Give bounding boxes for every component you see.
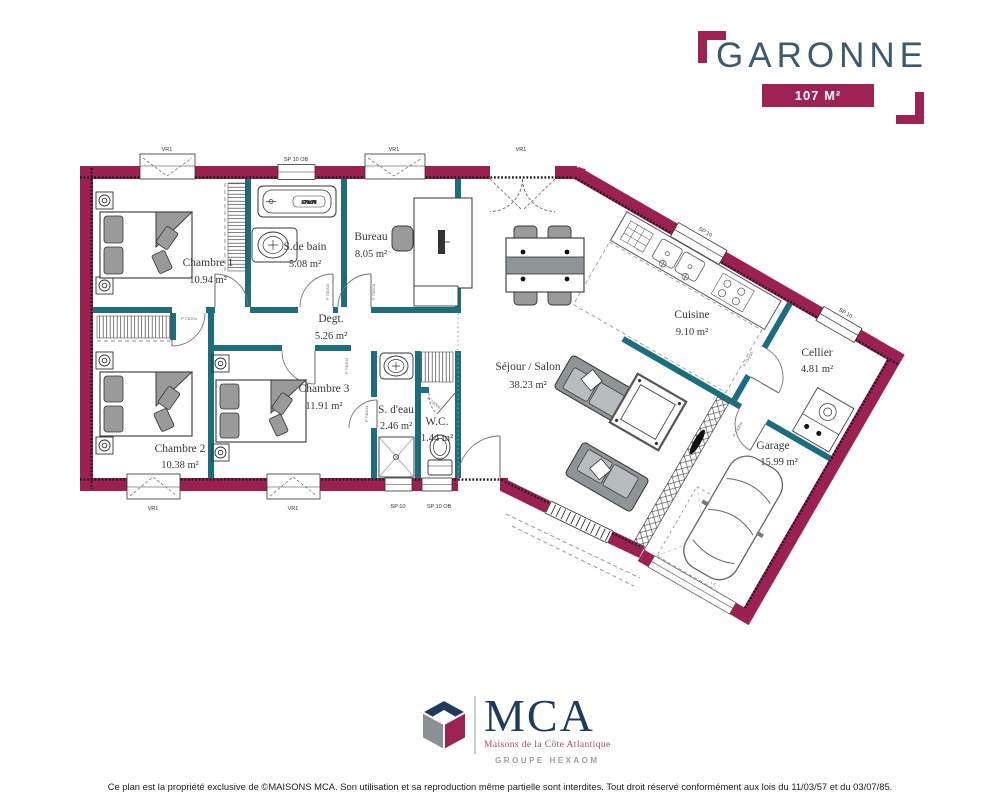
room-label-chambre-2: Chambre 2 10.38 m² <box>155 443 206 471</box>
room-label-degagement: Degt. 5.26 m² <box>315 313 347 342</box>
window-label: SP 10 <box>391 504 406 510</box>
svg-text:38.23 m²: 38.23 m² <box>509 380 547 391</box>
svg-text:Bureau: Bureau <box>354 231 387 243</box>
window-vr-top-1: VR1 <box>140 147 195 179</box>
sofa-2 <box>565 442 650 513</box>
bay-window <box>545 501 613 543</box>
shower <box>379 437 414 477</box>
window-sp-bottom: SP 10 <box>385 478 412 510</box>
svg-text:10.38 m²: 10.38 m² <box>161 460 199 471</box>
window-vr-top-2: VR1 <box>365 147 425 179</box>
svg-text:Séjour / Salon: Séjour / Salon <box>495 361 560 373</box>
mca-cube-icon <box>420 698 468 758</box>
svg-text:S.de bain: S.de bain <box>284 241 327 253</box>
window-vr-bottom-1: VR1 <box>127 474 180 512</box>
svg-text:10.94 m²: 10.94 m² <box>189 275 227 286</box>
svg-text:P 73/204: P 73/204 <box>325 283 330 300</box>
svg-text:8.05 m²: 8.05 m² <box>355 249 387 260</box>
svg-text:Cellier: Cellier <box>801 347 832 359</box>
window-label: SP 10 OB <box>284 157 309 163</box>
svg-text:Cuisine: Cuisine <box>674 309 709 321</box>
entry-door: VR1 <box>490 147 555 212</box>
page-title: GARONNE <box>716 36 926 76</box>
svg-text:Chambre 3: Chambre 3 <box>299 383 350 395</box>
svg-text:P 73/204: P 73/204 <box>426 396 442 411</box>
logo-name: MCA <box>484 694 611 738</box>
window-label: VR1 <box>516 147 527 153</box>
svg-text:15.99 m²: 15.99 m² <box>760 457 798 468</box>
svg-text:P 73/204: P 73/204 <box>371 283 376 300</box>
bathtub: 170x75 <box>258 186 336 217</box>
bed-chambre1 <box>100 212 192 278</box>
room-label-bureau: Bureau 8.05 m² <box>354 231 387 260</box>
logo-subtitle: Maisons de la Côte Atlantique <box>484 740 611 750</box>
svg-text:Chambre 1: Chambre 1 <box>183 257 234 269</box>
title-bracket-bottom-right <box>896 92 924 124</box>
window-label: VR1 <box>148 506 159 512</box>
window-label: SP 10 OB <box>427 504 452 510</box>
window-label: VR1 <box>162 147 173 153</box>
svg-text:11.91 m²: 11.91 m² <box>305 401 342 412</box>
room-label-cuisine: Cuisine 9.10 m² <box>674 309 709 338</box>
company-logo: MCA Maisons de la Côte Atlantique GROUPE… <box>420 694 611 765</box>
svg-text:Garage: Garage <box>756 440 789 452</box>
svg-text:9.10 m²: 9.10 m² <box>676 327 708 338</box>
door-size-label: P 73/204 <box>731 420 744 437</box>
svg-text:4.81 m²: 4.81 m² <box>801 364 833 375</box>
shower-room-vanity <box>380 353 413 379</box>
svg-text:P 73/204: P 73/204 <box>181 316 198 321</box>
room-label-sejour-salon: Séjour / Salon 38.23 m² <box>495 361 560 391</box>
svg-text:Degt.: Degt. <box>318 313 343 325</box>
floorplan: SP 10 SP 10 <box>0 0 1000 800</box>
bed-chambre2 <box>100 372 192 436</box>
bathtub-size-label: 170x75 <box>302 200 317 205</box>
svg-text:P 73/204: P 73/204 <box>247 283 252 300</box>
svg-text:P 73/204: P 73/204 <box>364 405 369 422</box>
svg-text:W.C.: W.C. <box>425 416 448 428</box>
window-label: VR1 <box>288 506 299 512</box>
svg-text:5.26 m²: 5.26 m² <box>315 331 347 342</box>
svg-text:2.46 m²: 2.46 m² <box>380 421 412 432</box>
page: { "header": { "title": "GARONNE", "area_… <box>0 0 1000 800</box>
room-label-cellier: Cellier 4.81 m² <box>801 347 833 375</box>
svg-text:1.44 m²: 1.44 m² <box>421 433 453 444</box>
room-label-wc: W.C. 1.44 m² <box>421 416 453 444</box>
svg-text:5.08 m²: 5.08 m² <box>289 259 321 270</box>
dining-table <box>506 226 584 305</box>
door-size-label: P 73/204 <box>742 350 755 367</box>
bed-chambre3 <box>216 380 306 442</box>
svg-text:P 73/204: P 73/204 <box>344 357 349 374</box>
closet-chambre2 <box>97 316 170 341</box>
logo-group: GROUPE HEXAOM <box>484 756 611 765</box>
window-spob-top: SP 10 OB <box>278 157 315 180</box>
room-label-salle-deau: S. d'eau 2.46 m² <box>378 404 414 432</box>
area-badge: 107 M² <box>762 84 874 107</box>
logo-divider <box>474 696 476 754</box>
copyright-text: Ce plan est la propriété exclusive de ©M… <box>0 781 1000 792</box>
svg-text:Chambre 2: Chambre 2 <box>155 443 206 455</box>
window-label: VR1 <box>389 147 400 153</box>
window-spob-bottom: SP 10 OB <box>422 478 452 510</box>
svg-text:S. d'eau: S. d'eau <box>378 404 414 416</box>
room-label-garage: Garage 15.99 m² <box>756 440 797 468</box>
laundry-nook <box>421 352 453 382</box>
window-vr-bottom-2: VR1 <box>267 474 320 512</box>
